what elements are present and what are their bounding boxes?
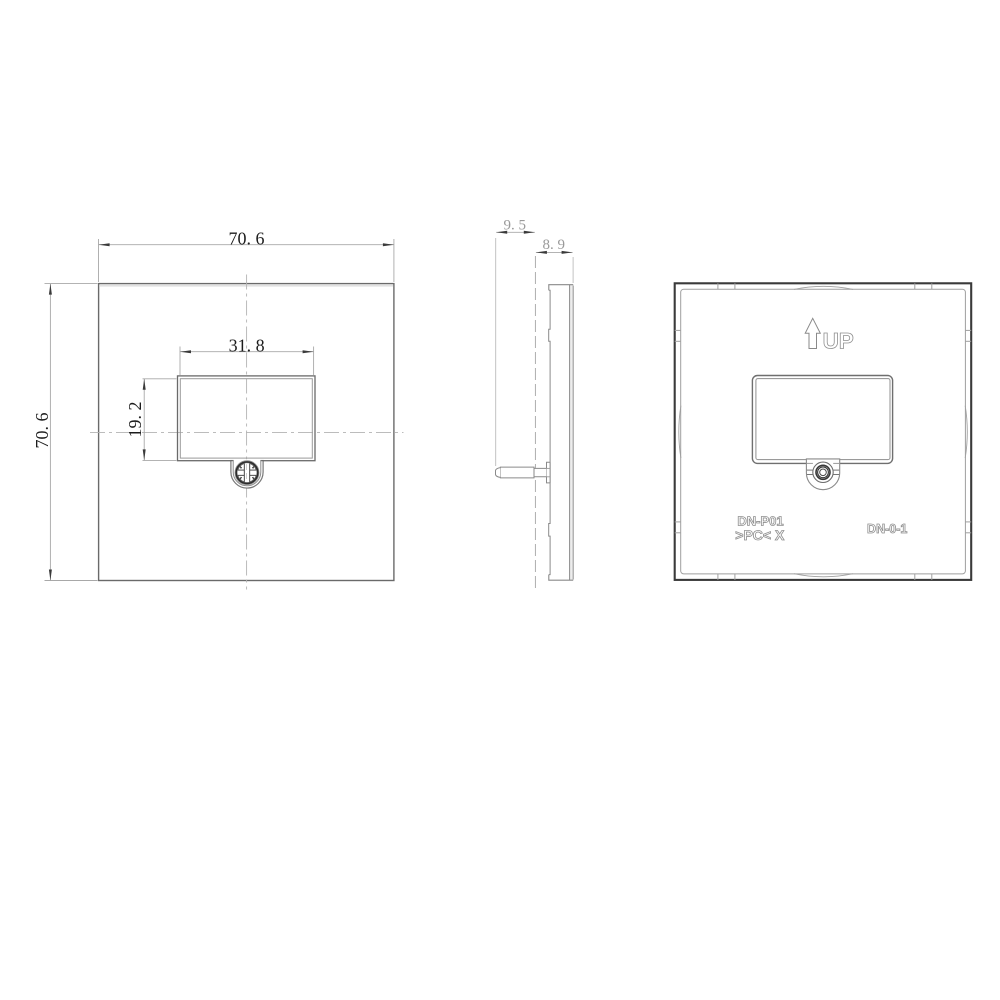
- svg-text:DN-0-1: DN-0-1: [867, 522, 907, 536]
- svg-text:8. 9: 8. 9: [543, 237, 566, 253]
- svg-text:9. 5: 9. 5: [504, 218, 527, 234]
- svg-text:>PC< X: >PC< X: [735, 527, 785, 543]
- svg-text:UP: UP: [823, 328, 854, 353]
- svg-text:70. 6: 70. 6: [229, 228, 265, 248]
- svg-text:19. 2: 19. 2: [125, 402, 145, 438]
- svg-text:70. 6: 70. 6: [32, 413, 52, 449]
- svg-text:31. 8: 31. 8: [229, 335, 265, 355]
